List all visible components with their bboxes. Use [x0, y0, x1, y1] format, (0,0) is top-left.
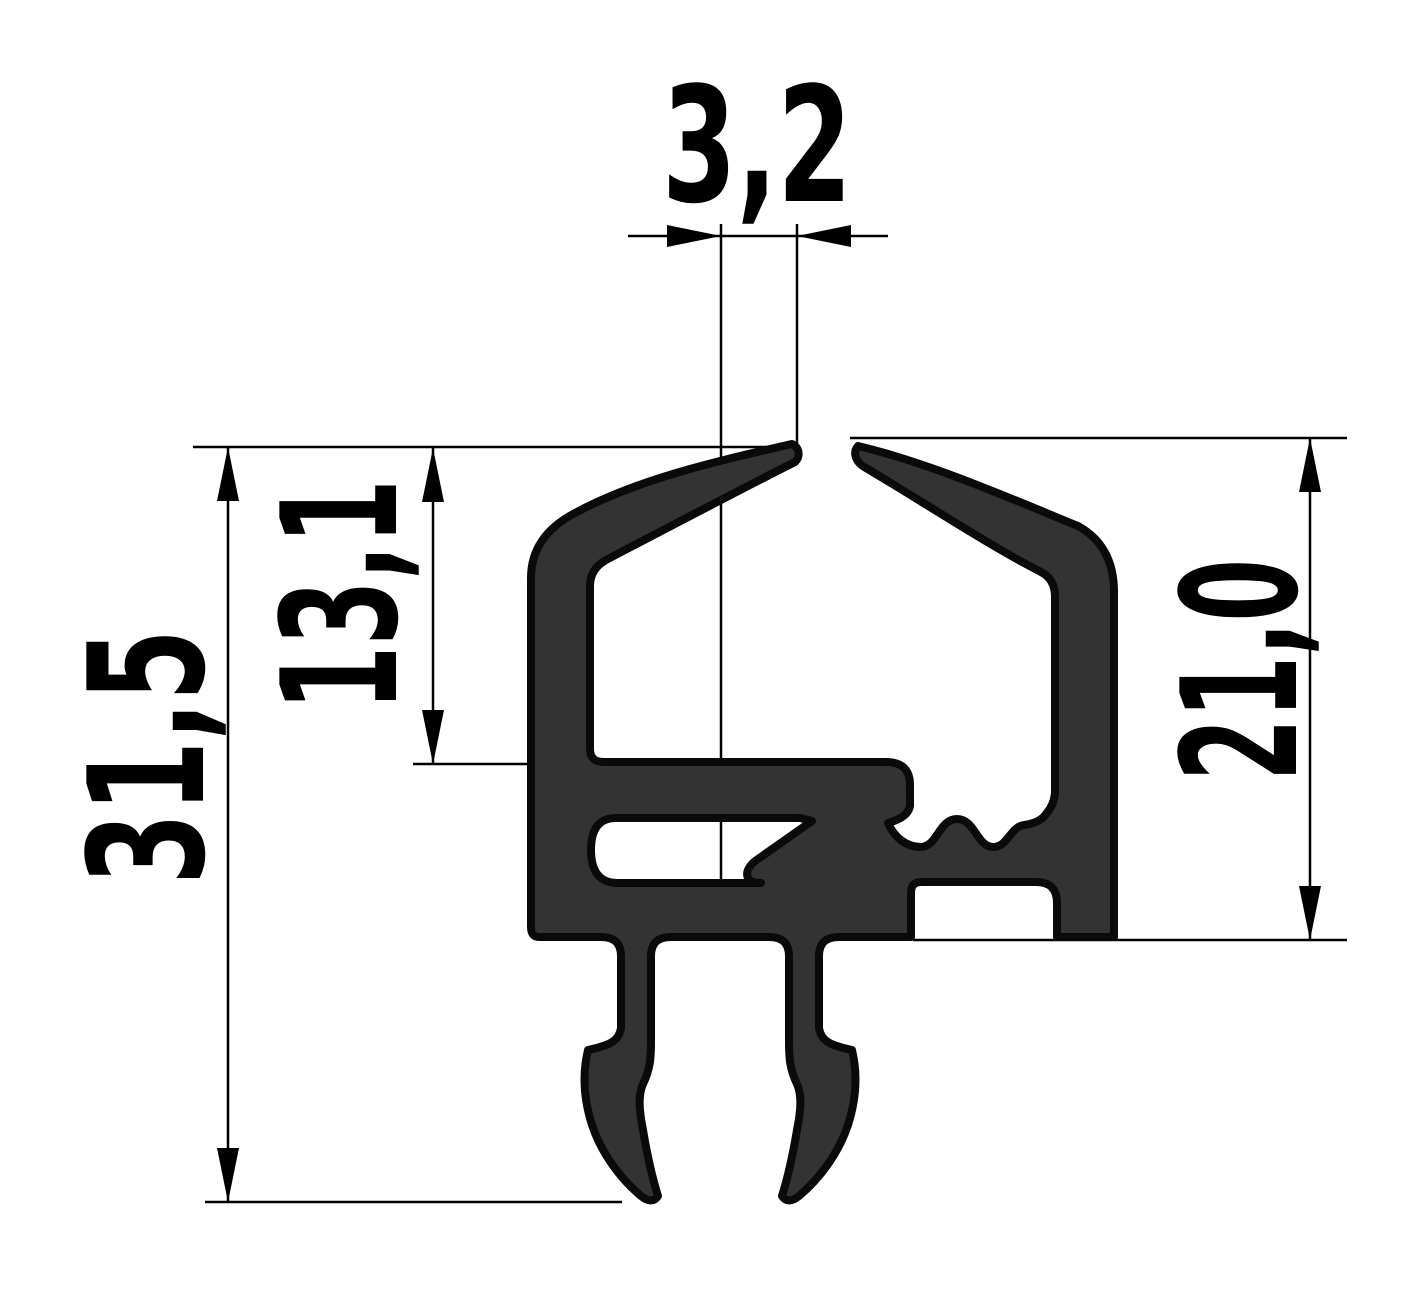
arrow-up-icon [1299, 438, 1321, 492]
seal-profile-cross-section [531, 444, 1114, 1201]
dimension-label-upper-height: 13,1 [247, 479, 434, 711]
arrow-up-icon [217, 447, 239, 501]
arrow-down-icon [217, 1148, 239, 1202]
dimension-label-right-height: 21,0 [1147, 559, 1334, 781]
drawing-canvas: 3,2 31,5 13,1 21,0 [0, 0, 1411, 1304]
arrow-down-icon [1299, 886, 1321, 940]
arrow-down-icon [422, 710, 444, 764]
dimension-label-gap-top: 3,2 [662, 52, 852, 239]
dimension-label-overall-height: 31,5 [54, 629, 241, 885]
profile-drawing: 3,2 31,5 13,1 21,0 [0, 0, 1411, 1304]
